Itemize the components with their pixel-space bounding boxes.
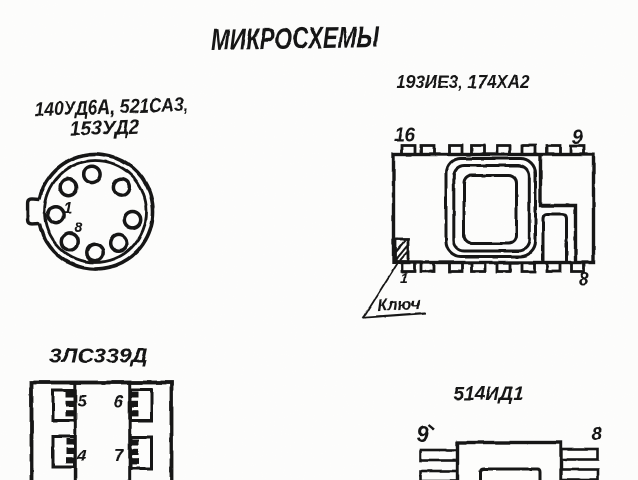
svg-text:153УД2: 153УД2 — [69, 116, 140, 140]
svg-text:8: 8 — [75, 219, 83, 235]
svg-text:514ИД1: 514ИД1 — [454, 384, 524, 405]
svg-text:16: 16 — [394, 125, 416, 147]
svg-text:7: 7 — [115, 447, 125, 465]
svg-text:5: 5 — [78, 393, 88, 411]
svg-text:193ИЕ3, 174ХА2: 193ИЕ3, 174ХА2 — [397, 71, 531, 92]
svg-text:4: 4 — [76, 447, 86, 465]
svg-text:МИКРОСХЕМЫ: МИКРОСХЕМЫ — [211, 21, 380, 57]
svg-text:1: 1 — [401, 270, 409, 286]
svg-text:Ключ: Ключ — [377, 294, 421, 315]
svg-text:8: 8 — [592, 424, 603, 445]
svg-text:8: 8 — [579, 269, 589, 289]
svg-text:3ЛС339Д: 3ЛС339Д — [50, 345, 148, 368]
svg-text:6: 6 — [114, 393, 124, 411]
svg-text:1: 1 — [64, 200, 73, 217]
svg-text:9: 9 — [417, 422, 430, 447]
